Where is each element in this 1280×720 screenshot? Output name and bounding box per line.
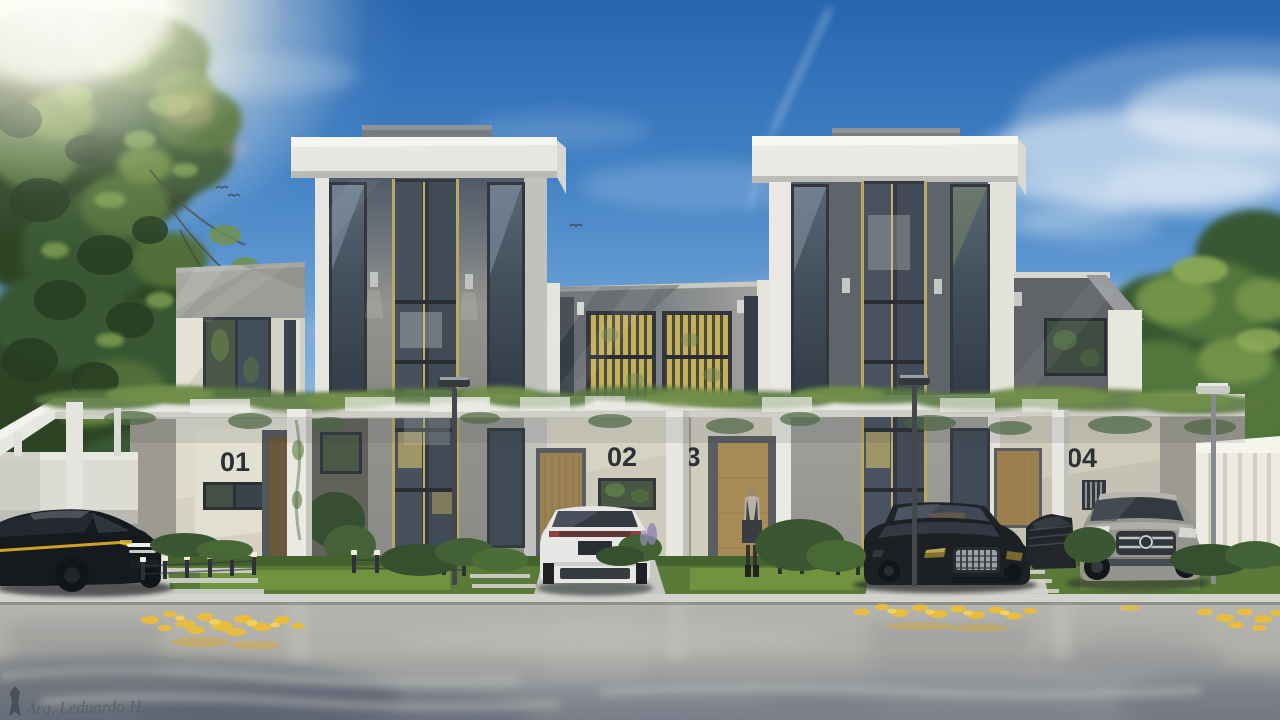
svg-text:Arq. Leduardo H: Arq. Leduardo H — [25, 697, 143, 718]
